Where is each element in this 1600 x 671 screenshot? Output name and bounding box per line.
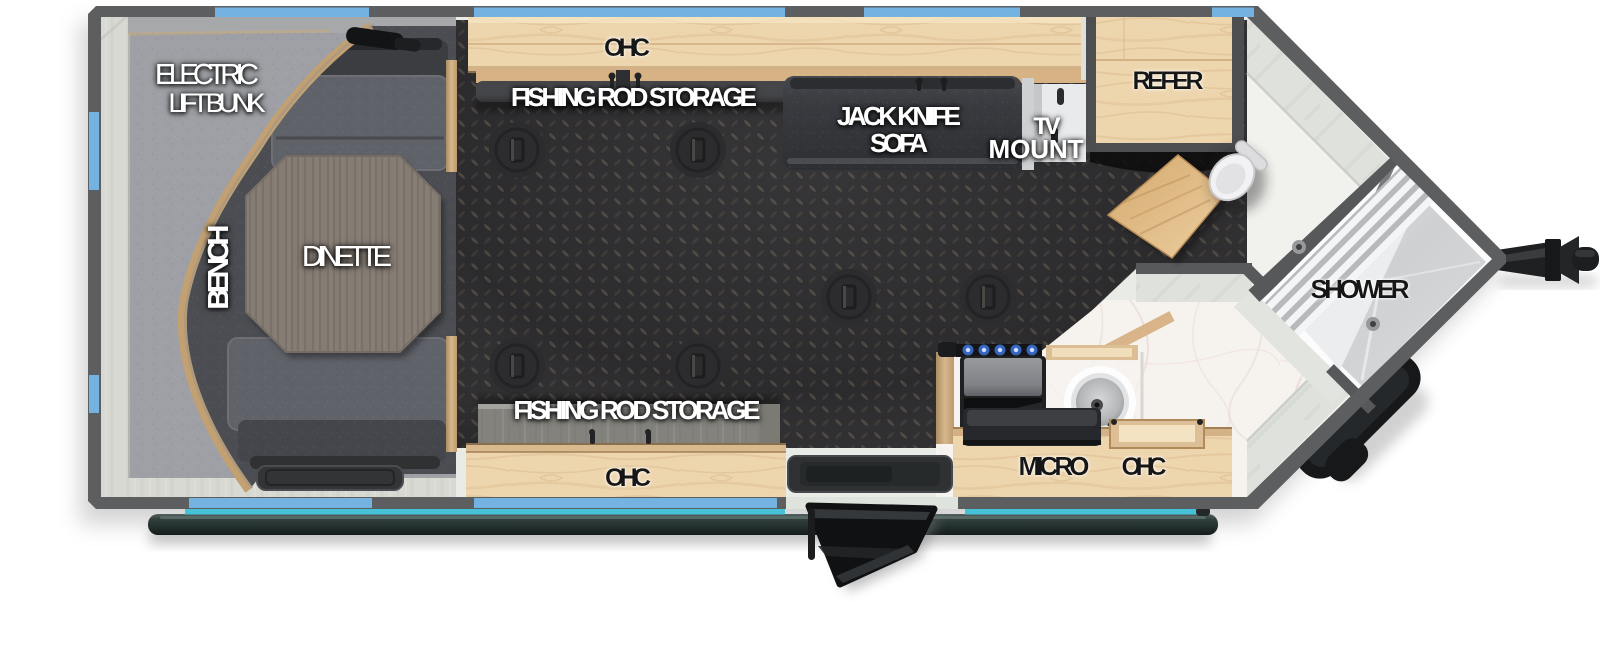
svg-text:SOFA: SOFA [870, 128, 928, 158]
svg-text:OHC: OHC [1122, 453, 1167, 481]
svg-text:OHC: OHC [604, 34, 650, 62]
svg-text:FISHING ROD STORAGE: FISHING ROD STORAGE [514, 395, 761, 425]
svg-text:LIFT BUNK: LIFT BUNK [169, 88, 266, 118]
svg-text:SHOWER: SHOWER [1311, 274, 1410, 304]
svg-text:MOUNT: MOUNT [989, 134, 1084, 164]
svg-text:ELECTRIC: ELECTRIC [155, 59, 259, 91]
svg-text:OHC: OHC [605, 464, 651, 492]
svg-text:DINETTE: DINETTE [302, 241, 392, 273]
svg-text:FISHING ROD STORAGE: FISHING ROD STORAGE [511, 82, 757, 112]
svg-text:MICRO: MICRO [1019, 451, 1090, 481]
svg-text:REFER: REFER [1133, 67, 1204, 95]
svg-text:BENCH: BENCH [203, 225, 235, 310]
svg-text:JACK KNIFE: JACK KNIFE [837, 101, 961, 131]
